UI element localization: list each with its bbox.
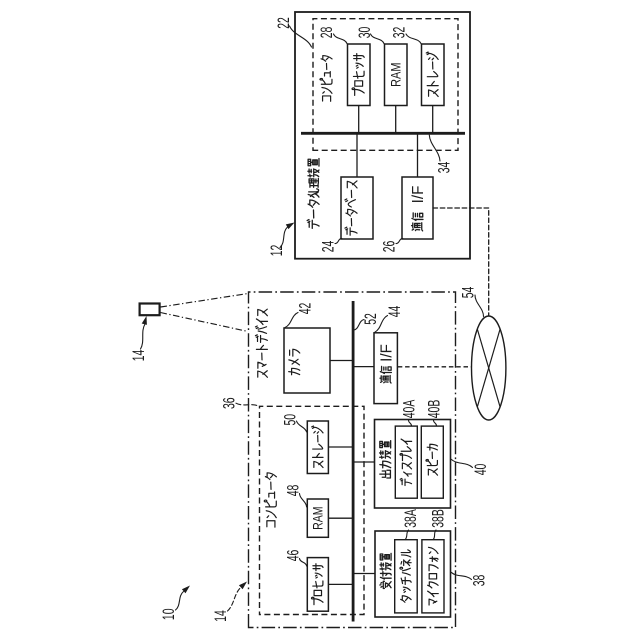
svg-text:38: 38 [470,574,488,586]
svg-text:38B: 38B [429,509,447,528]
svg-text:40: 40 [472,463,490,475]
svg-text:52: 52 [362,313,380,325]
svg-text:38A: 38A [402,509,420,528]
svg-text:RAM: RAM [310,507,326,530]
svg-text:34: 34 [435,161,453,173]
svg-text:26: 26 [380,241,398,253]
svg-text:36: 36 [220,397,238,409]
svg-text:30: 30 [356,26,374,38]
svg-text:10: 10 [160,608,178,620]
svg-text:42: 42 [296,303,314,315]
svg-text:54: 54 [459,286,477,298]
svg-text:24: 24 [319,240,337,252]
svg-text:RAM: RAM [388,63,404,87]
svg-text:44: 44 [386,305,404,317]
svg-text:12: 12 [268,245,286,257]
svg-text:I/F: I/F [410,186,427,204]
svg-text:40B: 40B [425,400,443,419]
svg-text:14: 14 [130,349,148,361]
svg-text:50: 50 [281,414,299,426]
svg-text:I/F: I/F [378,344,395,362]
svg-text:28: 28 [318,26,336,38]
svg-text:40A: 40A [400,399,418,418]
svg-text:32: 32 [390,27,408,39]
svg-text:14: 14 [212,610,230,622]
